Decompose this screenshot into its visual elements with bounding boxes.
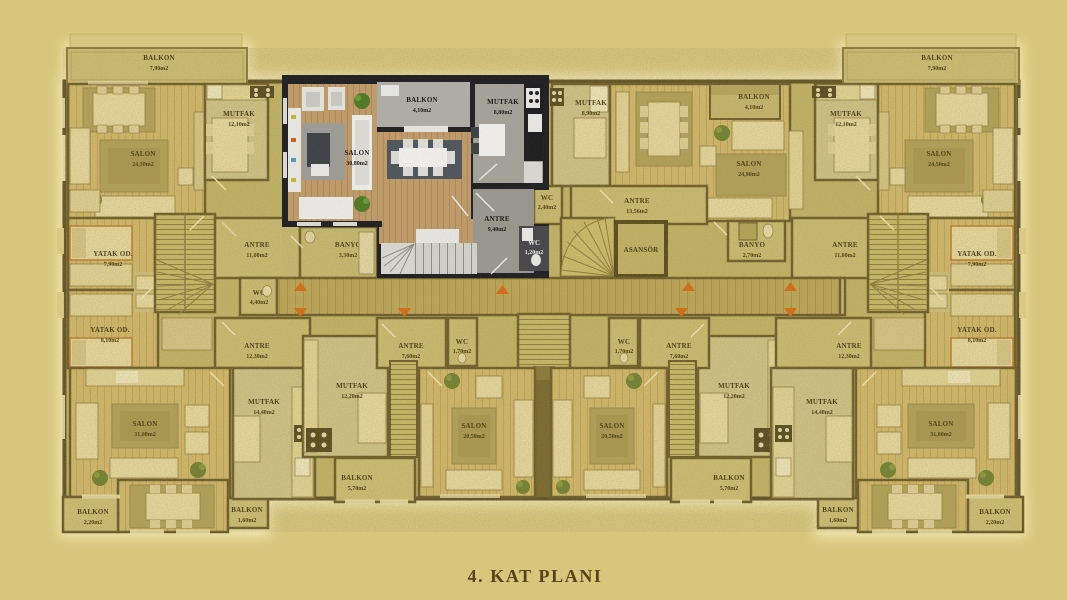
svg-text:4. KAT PLANI: 4. KAT PLANI: [467, 566, 602, 586]
